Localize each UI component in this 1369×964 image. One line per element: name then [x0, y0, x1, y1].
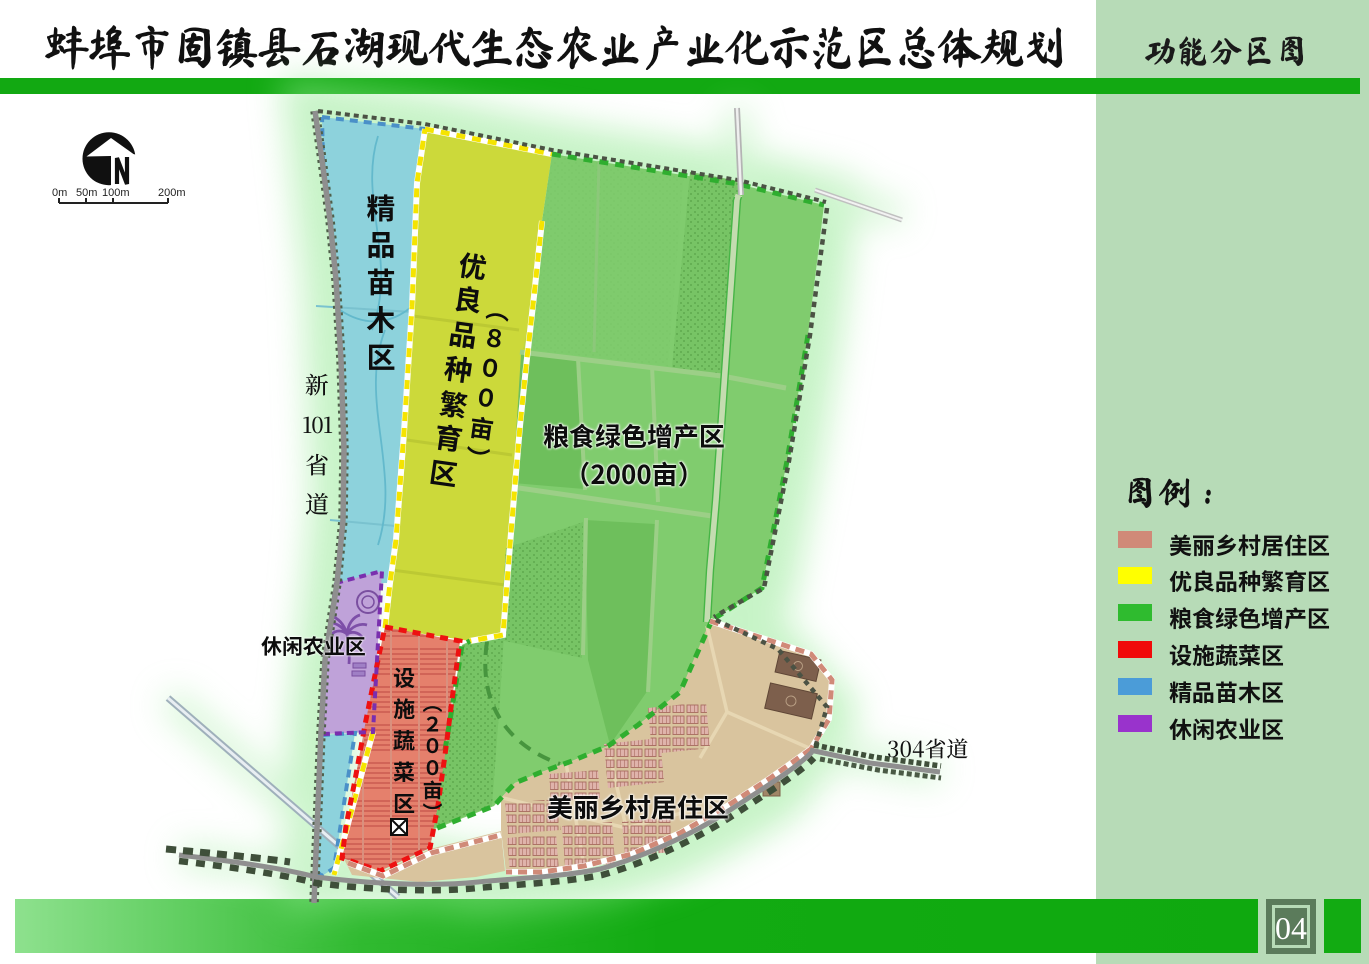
svg-text:50m: 50m — [76, 187, 97, 199]
svg-text:0m: 0m — [52, 187, 67, 199]
svg-text:200m: 200m — [158, 187, 186, 199]
svg-text:100m: 100m — [102, 187, 130, 199]
